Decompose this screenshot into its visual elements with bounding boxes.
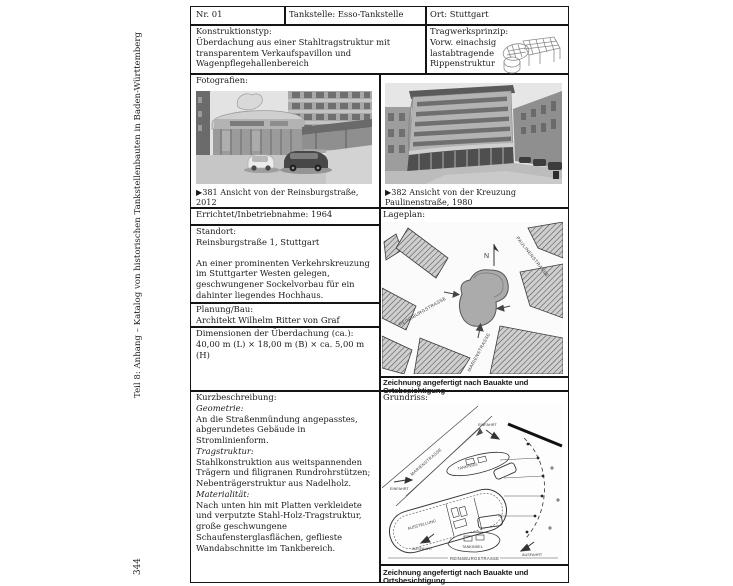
photo-caption-right: ▶382 Ansicht von der Kreuzung Paulinenst… [385,187,557,207]
nr-label: Nr. 01 [196,9,222,19]
standort-cell: Standort: Reinsburgstraße 1, Stuttgart A… [191,224,379,302]
lageplan-label: Lageplan: [383,209,564,220]
header-tankstelle-cell: Tankstelle: Esso-Tankstelle [284,7,425,24]
tragwerksprinzip-cell: Tragwerksprinzip: Vorw. einachsig lastab… [425,24,568,73]
lageplan-drawing: N PAULINENSTRASSE REINSBURGSTRASSE MARIE… [382,222,563,374]
planung-label: Planung/Bau: [196,304,374,315]
tragwerk-sketch-icon [499,28,565,74]
tankstelle-label: Tankstelle: Esso-Tankstelle [289,9,403,19]
geometrie-label: Geometrie: [196,403,374,414]
label-ausfahrt-1: AUSFAHRT [412,547,433,551]
header-ort-cell: Ort: Stuttgart [425,7,568,24]
photo-paulinenstrasse-1980 [385,83,562,184]
standort-label: Standort: [196,226,374,237]
grundriss-label: Grundriss: [383,392,564,403]
standort-address: Reinsburgstraße 1, Stuttgart [196,237,374,248]
fotografien-cell-left: Fotografien: [191,73,379,207]
grundriss-drawing: MARIENSTRASSE AUSSTELLUNG [382,404,563,562]
svg-text:N: N [484,253,489,260]
label-einfahrt-1: EINFAHRT [390,487,409,491]
catalog-page: Teil 8: Anhang – Katalog von historische… [0,0,733,586]
konstruktionstyp-cell: Konstruktionstyp: Überdachung aus einer … [191,24,425,73]
ort-label: Ort: Stuttgart [430,9,489,19]
tragstruktur-label: Tragstruktur: [196,446,374,457]
planung-cell: Planung/Bau: Architekt Wilhelm Ritter vo… [191,302,379,326]
catalog-table: Nr. 01 Tankstelle: Esso-Tankstelle Ort: … [190,6,569,583]
tragstruktur-text: Stahlkonstruktion aus weitspannenden Trä… [196,457,374,489]
header-nr-cell: Nr. 01 [191,7,284,24]
street-label-reinsburgstrasse: REINSBURGSTRASSE [450,556,499,561]
errichtet-text: Errichtet/Inbetriebnahme: 1964 [196,209,332,219]
errichtet-cell: Errichtet/Inbetriebnahme: 1964 [191,207,379,224]
lageplan-cell: Lageplan: [379,207,568,390]
label-ausfahrt-2: AUSFAHRT [522,553,543,557]
materialitaet-label: Materialität: [196,489,374,500]
kurzbeschreibung-label: Kurzbeschreibung: [196,392,374,403]
dimensionen-text: 40,00 m (L) × 18,00 m (B) × ca. 5,00 m (… [196,339,374,361]
grundriss-caption: Zeichnung angefertigt nach Bauakte und O… [379,566,566,586]
photo-reinsburgstrasse-2012 [196,91,372,184]
kurzbeschreibung-cell: Kurzbeschreibung: Geometrie: An die Stra… [191,390,379,582]
grundriss-cell: Grundriss: MARIENSTRASSE [379,390,568,582]
konstruktionstyp-text: Überdachung aus einer Stahltragstruktur … [196,37,390,69]
geometrie-text: An die Straßenmündung angepasstes, abger… [196,414,374,446]
fotografien-label: Fotografien: [196,75,374,86]
label-tankinsel-2: TANKINSEL [462,545,483,549]
fotografien-cell-right: ▶382 Ansicht von der Kreuzung Paulinenst… [379,73,568,207]
dimensionen-cell: Dimensionen der Überdachung (ca.): 40,00… [191,326,379,390]
page-number: 344 [133,545,147,575]
materialitaet-text: Nach unten hin mit Platten verkleidete u… [196,500,374,554]
dimensionen-label: Dimensionen der Überdachung (ca.): [196,328,374,339]
margin-chapter-title: Teil 8: Anhang – Katalog von historische… [133,8,148,398]
photo-caption-left: ▶381 Ansicht von der Reinsburgstraße, 20… [196,187,374,207]
konstruktionstyp-label: Konstruktionstyp: [196,26,420,37]
label-einfahrt-2: EINFAHRT [478,423,497,427]
standort-description: An einer prominenten Verkehrskreuzung im… [196,258,370,300]
planung-text: Architekt Wilhelm Ritter von Graf [196,315,374,326]
